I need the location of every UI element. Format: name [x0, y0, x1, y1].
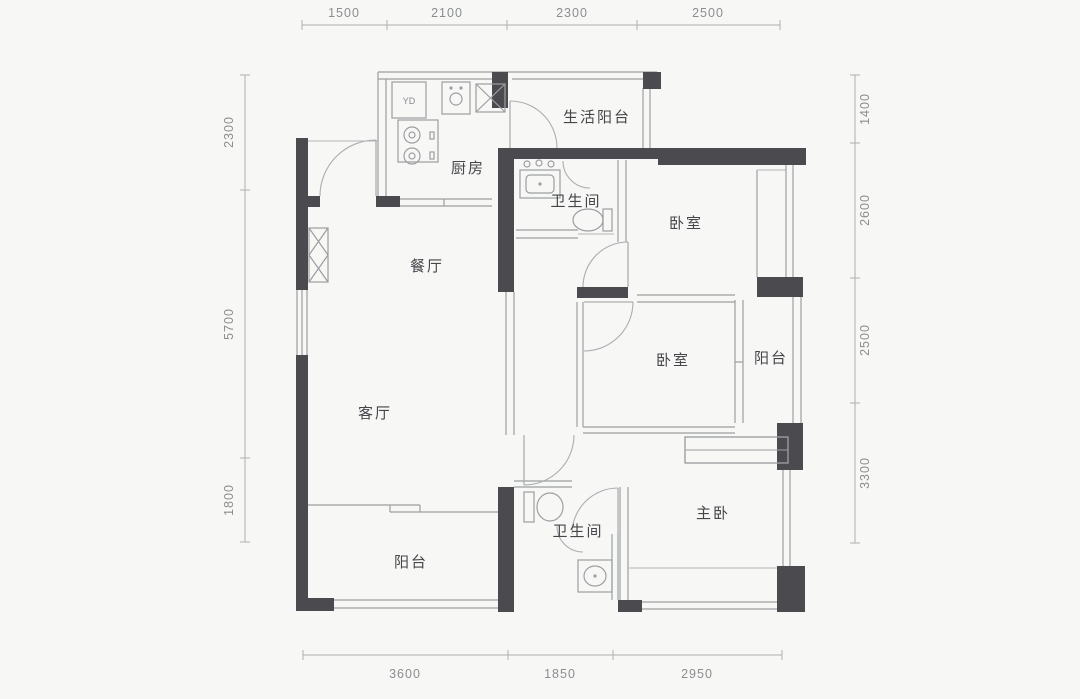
wardrobe: [685, 437, 788, 463]
room-label-living: 客厅: [358, 405, 392, 422]
stove: [398, 120, 438, 164]
dim-top-1: 1500: [328, 6, 360, 20]
service-balcony-door: [510, 101, 557, 148]
dim-right-1: 1400: [858, 93, 872, 125]
bedroom-2-door: [584, 302, 633, 351]
bathroom-1-shower-arc: [563, 161, 590, 188]
bathroom-2-toilet: [524, 492, 563, 522]
dim-right-3: 2500: [858, 324, 872, 356]
solid-walls: [296, 72, 806, 612]
dim-bottom-1: 3600: [389, 667, 421, 681]
bathroom-2-basin: [578, 560, 612, 592]
kitchen-sink: [442, 82, 470, 114]
room-label-bathroom-2: 卫生间: [552, 523, 603, 540]
dim-right-2: 2600: [858, 194, 872, 226]
dim-bottom-3: 2950: [681, 667, 713, 681]
dimension-right: 1400 2600 2500 3300: [850, 75, 872, 543]
master-bedroom-door: [524, 435, 574, 485]
dim-left-3: 1800: [222, 484, 236, 516]
dim-top-4: 2500: [692, 6, 724, 20]
dimension-top: 1500 2100 2300 2500: [302, 6, 780, 30]
dim-top-3: 2300: [556, 6, 588, 20]
dim-left-1: 2300: [222, 116, 236, 148]
duct-shaft: [309, 228, 328, 282]
bedroom-1-door: [583, 242, 628, 287]
room-labels: 生活阳台 厨房 卫生间 卧室 餐厅 卧室 阳台 客厅 主卧 卫生间 阳台 YD: [358, 96, 788, 571]
floor-plan-page: 生活阳台 厨房 卫生间 卧室 餐厅 卧室 阳台 客厅 主卧 卫生间 阳台 YD …: [0, 0, 1080, 699]
room-label-balcony-mid: 阳台: [754, 350, 788, 367]
dim-bottom-2: 1850: [544, 667, 576, 681]
entry-door: [320, 140, 376, 196]
floor-plan-svg: 生活阳台 厨房 卫生间 卧室 餐厅 卧室 阳台 客厅 主卧 卫生间 阳台 YD …: [0, 0, 1080, 699]
bathroom-1-toilet: [573, 209, 612, 231]
room-label-bedroom-1: 卧室: [669, 215, 703, 232]
dimension-left: 2300 5700 1800: [222, 75, 250, 542]
room-label-living-balcony: 生活阳台: [563, 109, 631, 126]
dim-left-2: 5700: [222, 308, 236, 340]
room-label-bedroom-2: 卧室: [656, 352, 690, 369]
dimension-bottom: 3600 1850 2950: [303, 650, 782, 681]
room-label-dining: 餐厅: [410, 258, 444, 275]
dim-top-2: 2100: [431, 6, 463, 20]
room-label-bathroom-1: 卫生间: [550, 193, 601, 210]
room-label-master-bedroom: 主卧: [696, 505, 730, 522]
room-label-kitchen: 厨房: [451, 160, 485, 177]
dim-right-4: 3300: [858, 457, 872, 489]
room-label-balcony-bottom: 阳台: [394, 554, 428, 571]
washer-box-label: YD: [403, 96, 416, 106]
